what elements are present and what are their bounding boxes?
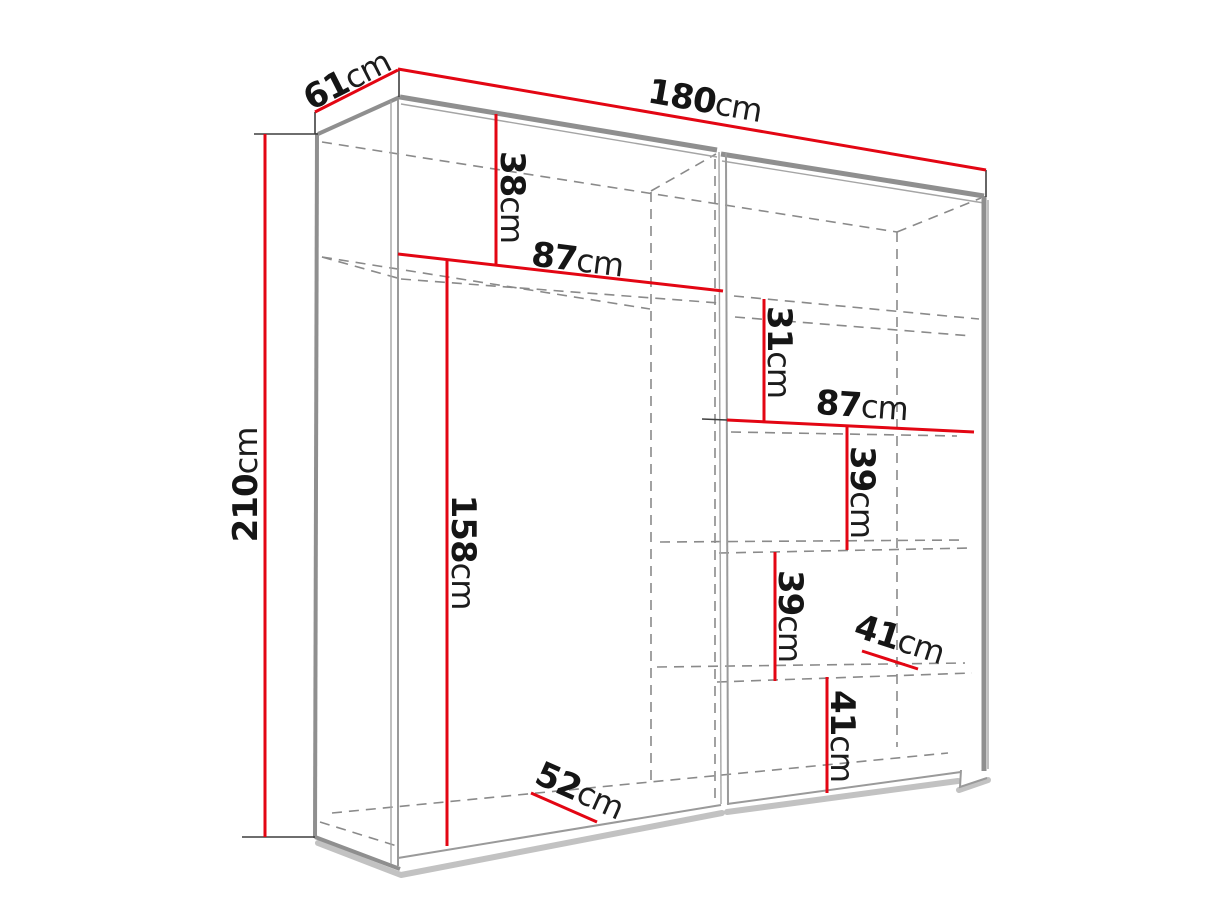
shadow-right [727,781,958,812]
dim-shelf-gap-upper-unit: cm [843,491,881,538]
dim-left-section-width-label: 87cm [529,235,625,286]
dim-height-value: 210 [226,474,266,542]
top-shelf-front-edge [401,279,719,303]
wardrobe-dimension-diagram: 61cm 180cm 210cm 38cm 87cm 158cm 31cm 87… [0,0,1231,923]
dim-hanging-height-unit: cm [444,563,482,610]
floor-shadow [318,780,988,875]
door-divider-left [719,152,721,804]
dim-shelf-gap-middle-label: 39cm [770,570,810,662]
dim-left-section-width-unit: cm [574,241,625,284]
dim-bottom-gap-label: 41cm [822,690,862,782]
dim-shelf-gap-middle-unit: cm [771,615,809,662]
dim-shelf-gap-upper-label: 39cm [842,446,882,538]
top-rail-right [721,154,984,196]
dim-height-label: 210cm [226,428,266,543]
dim-bottom-gap-unit: cm [823,735,861,782]
dim-depth-label: 61cm [297,41,397,118]
dim-width-unit: cm [712,84,765,130]
dim-bottom-gap-value: 41 [822,690,862,735]
dim-shelf-gap-middle-value: 39 [770,570,810,615]
dim-width-value: 180 [645,72,719,123]
dim-interior-depth-label: 52cm [529,754,629,828]
tick-right-shelf-left [702,419,727,420]
bottom-left-depth-edge [315,837,400,869]
dim-right-section-width-unit: cm [860,387,909,428]
right-shelf3-back-edge [660,540,965,542]
left-side-edge [315,133,317,838]
diagram-canvas: 61cm 180cm 210cm 38cm 87cm 158cm 31cm 87… [0,0,1231,923]
shadow-left [318,813,722,875]
right-shelf2-under-edge [731,432,957,436]
dim-top-shelf-drop-label: 38cm [492,151,532,243]
door-divider-right [726,153,728,805]
dim-top-shelf-drop-value: 38 [492,151,532,196]
dim-height-unit: cm [227,428,265,475]
dim-top-shelf-drop-unit: cm [493,196,531,243]
dim-hanging-height-label: 158cm [443,495,483,610]
dim-right-top-gap-unit: cm [760,351,798,398]
interior-top-right-depth-edge [897,198,981,232]
dim-right-top-gap-label: 31cm [759,306,799,398]
right-shelf4-front-edge [717,673,972,682]
dim-left-section-width-value: 87 [529,235,579,280]
partition-top-depth-edge [651,154,716,191]
dim-right-top-gap-value: 31 [759,306,799,351]
dim-right-section-width-value: 87 [814,383,862,426]
dim-hanging-height-value: 158 [443,495,483,563]
interior-top-back-edge [322,142,897,232]
dim-right-section-width-label: 87cm [814,383,909,429]
top-rail-right-inner [722,161,984,203]
dim-shelf-gap-upper-value: 39 [842,446,882,491]
